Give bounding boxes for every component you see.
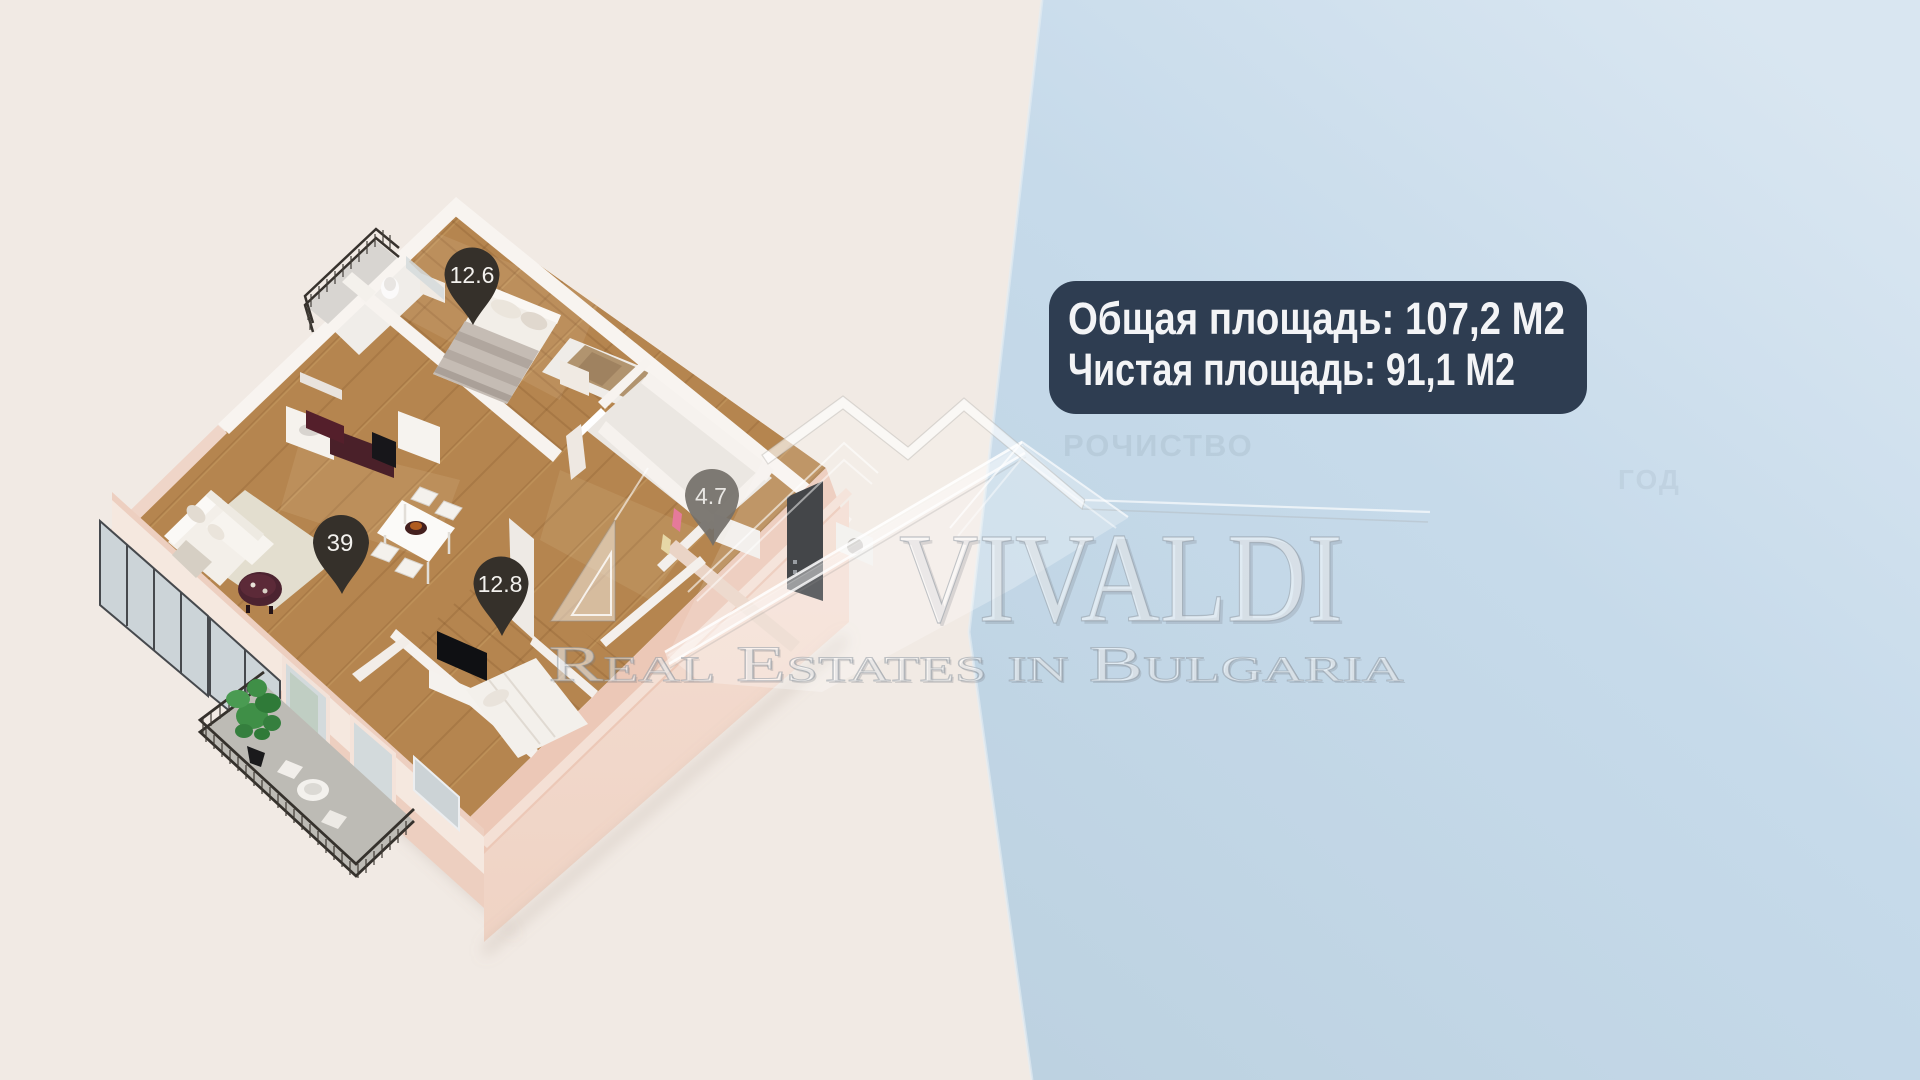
svg-text:4.7: 4.7 — [695, 483, 727, 509]
svg-text:Общая площадь: 107,2 М2: Общая площадь: 107,2 М2 — [1068, 293, 1565, 344]
svg-text:Чистая площадь: 91,1 М2: Чистая площадь: 91,1 М2 — [1068, 344, 1515, 395]
svg-text:РОЧИСТВО: РОЧИСТВО — [1063, 428, 1254, 463]
svg-text:12.8: 12.8 — [478, 571, 523, 597]
svg-text:12.6: 12.6 — [450, 262, 495, 288]
svg-text:ГОД: ГОД — [1618, 464, 1681, 495]
svg-text:39: 39 — [327, 530, 354, 557]
svg-text:Real Estates in Bulgaria: Real Estates in Bulgaria — [549, 637, 1404, 693]
svg-text:VIVALDI: VIVALDI — [899, 507, 1343, 649]
